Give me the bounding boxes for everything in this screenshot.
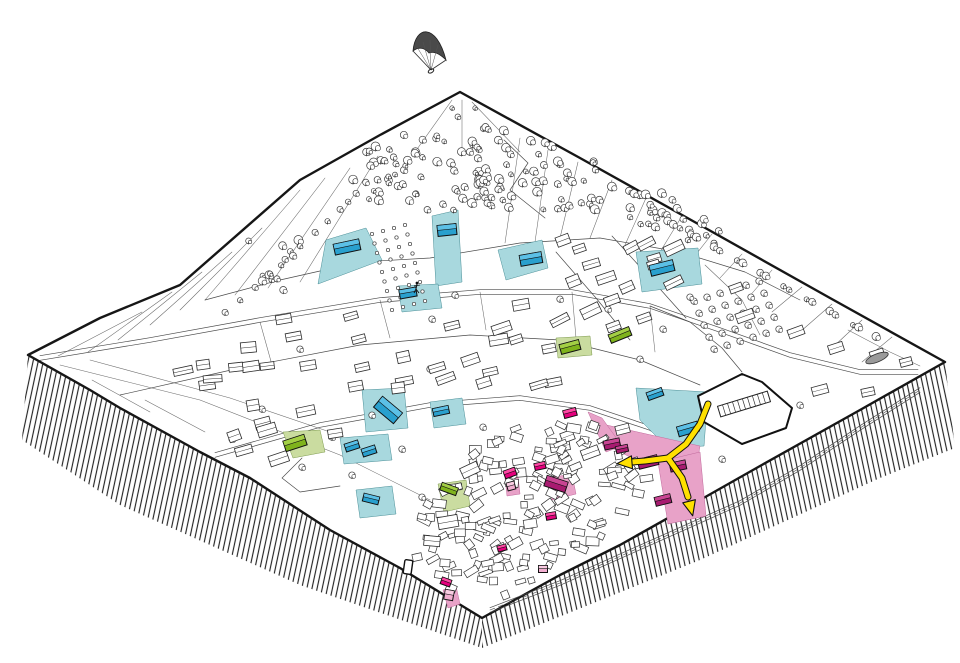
isometric-village-map: [0, 0, 960, 663]
cyan-parcel: [432, 210, 462, 286]
paraglider-icon: [413, 32, 446, 74]
vehicle: [403, 560, 413, 575]
map-canvas: [0, 0, 960, 663]
